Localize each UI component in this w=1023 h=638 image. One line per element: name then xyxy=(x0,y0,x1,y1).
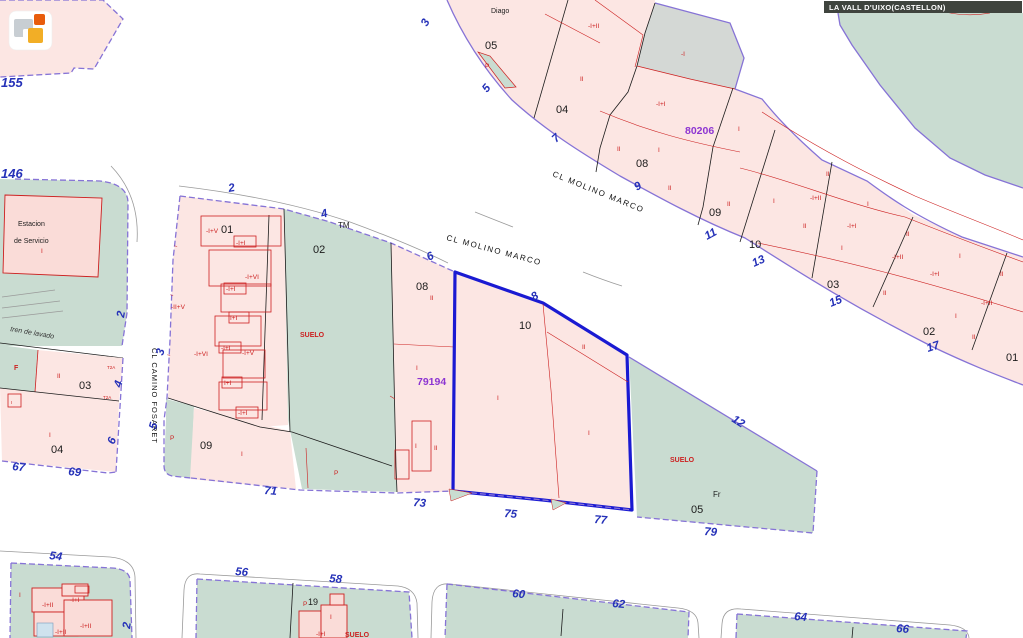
parcel-id-north: 80206 xyxy=(685,125,714,137)
parcel-number: 05 xyxy=(691,504,703,516)
parcel-number: 08 xyxy=(636,158,648,170)
parcel-id-south: 79194 xyxy=(417,376,446,388)
floor-label: P xyxy=(170,435,174,442)
floor-label: -I+I xyxy=(238,410,248,417)
parcel-f[interactable] xyxy=(0,345,38,392)
floor-label: II xyxy=(617,146,621,153)
parcel-60-62[interactable] xyxy=(445,584,689,638)
floor-label: I xyxy=(11,400,12,405)
street-number: 60 xyxy=(512,588,527,601)
floor-label: I xyxy=(415,443,417,450)
floor-label: P xyxy=(303,601,307,608)
floor-label: I xyxy=(867,201,869,208)
street-number: 4 xyxy=(319,207,330,221)
floor-label: -I+I xyxy=(236,240,246,247)
cadastral-map-canvas[interactable]: LA VALL D'UIXO(CASTELLON) xyxy=(0,0,1023,638)
estacion-label-line2: de Servicio xyxy=(14,238,49,245)
floor-label: I xyxy=(241,451,243,458)
parcel-number: 19 xyxy=(308,597,318,607)
parcel-number: 02 xyxy=(313,244,325,256)
floor-label: I xyxy=(49,432,51,439)
floor-label: -I+I xyxy=(316,631,326,638)
floor-label: -I xyxy=(681,51,685,58)
street-number: 58 xyxy=(329,573,343,586)
parcel-number: 10 xyxy=(749,239,761,251)
floor-label: I xyxy=(955,313,957,320)
street-number: 79 xyxy=(704,526,718,539)
floor-label: II xyxy=(972,334,976,341)
floor-label: -I+V xyxy=(242,350,255,357)
floor-label: II xyxy=(906,231,910,238)
street-number: 73 xyxy=(413,497,427,510)
floor-label: -I+II xyxy=(55,629,67,636)
parcel-s10-selected[interactable] xyxy=(453,272,632,510)
floor-label: -I+V xyxy=(206,228,219,235)
floor-label: I xyxy=(19,592,21,599)
floor-label: I+I xyxy=(230,315,238,322)
floor-label: -I+VI xyxy=(194,351,208,358)
fr-mark: Fr xyxy=(713,490,721,499)
parcel-number: 04 xyxy=(51,444,63,456)
estacion-label-line1: Estacion xyxy=(18,221,45,228)
floor-label: -I+VI xyxy=(245,274,259,281)
app-logo xyxy=(9,11,52,50)
floor-label: II xyxy=(883,290,887,297)
floor-label: I xyxy=(416,365,418,372)
street-number: 13 xyxy=(750,253,767,269)
street-number: 67 xyxy=(12,461,27,474)
street-number: 62 xyxy=(612,598,626,611)
floor-label: -I+II xyxy=(810,195,822,202)
floor-label: -I+I xyxy=(847,223,857,230)
street-number: 64 xyxy=(794,611,808,624)
floor-label: II xyxy=(580,76,584,83)
floor-label: II xyxy=(668,185,672,192)
street-number: 56 xyxy=(235,566,249,579)
floor-label: II xyxy=(57,373,61,380)
suelo-label: SUELO xyxy=(345,632,370,638)
floor-label: -I+II xyxy=(588,23,600,30)
floor-label: -I+I xyxy=(656,101,666,108)
parcel-number: 04 xyxy=(556,104,568,116)
floor-label: T2A xyxy=(103,395,111,400)
floor-label: -I+II xyxy=(892,254,904,261)
street-number: 54 xyxy=(49,550,64,564)
floor-label: II xyxy=(434,445,438,452)
street-number: 75 xyxy=(504,508,518,521)
floor-label: -I+I xyxy=(221,345,231,352)
parcel-s05-suelo[interactable] xyxy=(629,357,817,533)
parcel-number: 03 xyxy=(79,380,91,392)
parcel-number: 09 xyxy=(709,207,721,219)
street-number: 5 xyxy=(480,82,494,95)
suelo-label: SUELO xyxy=(300,332,325,339)
place-diago: Diago xyxy=(491,8,509,15)
pool xyxy=(37,623,53,637)
floor-label: -I+II xyxy=(981,300,993,307)
floor-label: -I+II xyxy=(42,602,54,609)
floor-label: I xyxy=(497,395,499,402)
street-number: 155 xyxy=(1,75,23,90)
floor-label: II xyxy=(826,171,830,178)
floor-label: I xyxy=(959,253,961,260)
floor-label: -I+I xyxy=(70,597,80,604)
street-number: 71 xyxy=(264,485,278,498)
parcel-number: 01 xyxy=(221,224,233,236)
floor-label: II xyxy=(430,295,434,302)
street-number: 11 xyxy=(703,226,719,242)
floor-label: I xyxy=(841,245,843,252)
street-number: 3 xyxy=(419,17,433,29)
floor-label: II xyxy=(1000,271,1004,278)
parcel-number: 10 xyxy=(519,320,531,332)
cadastral-viewer: LA VALL D'UIXO(CASTELLON) xyxy=(0,0,1023,638)
floor-label: -I+II xyxy=(80,623,92,630)
parcel-s02-suelo[interactable] xyxy=(284,209,397,492)
floor-label: I xyxy=(588,430,590,437)
floor-label: II xyxy=(582,344,586,351)
floor-label: T2A xyxy=(107,365,115,370)
floor-label: I xyxy=(738,126,740,133)
floor-label: I xyxy=(658,147,660,154)
floor-label: I xyxy=(773,198,775,205)
building-estacion xyxy=(3,195,102,277)
street-name-molino-marco-a: CL MOLINO MARCO xyxy=(445,233,542,267)
floor-label: I xyxy=(330,614,332,621)
floor-label: -I+I xyxy=(930,271,940,278)
parcel-number: 08 xyxy=(416,281,428,293)
parcel-number: 01 xyxy=(1006,352,1018,364)
street-number: 146 xyxy=(1,166,23,181)
parcel-green-strip[interactable] xyxy=(164,399,194,478)
street-number: 77 xyxy=(594,514,608,527)
logo-yellow-square-icon xyxy=(28,28,43,43)
municipality-label: LA VALL D'UIXO(CASTELLON) xyxy=(829,3,946,12)
logo-orange-square-icon xyxy=(34,14,45,25)
parcel-number: 09 xyxy=(200,440,212,452)
parcel-number: 02 xyxy=(923,326,935,338)
floor-label: II xyxy=(727,201,731,208)
parcel-number: 03 xyxy=(827,279,839,291)
floor-label: F xyxy=(14,365,19,372)
parcel-number: 05 xyxy=(485,40,497,52)
floor-label: II xyxy=(803,223,807,230)
tm-boundary-mark: TM xyxy=(338,221,350,230)
parcel-w04[interactable] xyxy=(0,388,119,472)
floor-label: I+I xyxy=(224,380,232,387)
street-number: 69 xyxy=(68,466,83,479)
floor-label: I xyxy=(41,248,43,255)
floor-label: -II+V xyxy=(171,304,186,311)
floor-label: -I+I xyxy=(226,286,236,293)
street-number: 66 xyxy=(896,623,910,636)
parcel-green-corner[interactable] xyxy=(838,13,1023,188)
floor-label: P xyxy=(485,63,489,70)
floor-label: P xyxy=(334,470,338,477)
suelo-label: SUELO xyxy=(670,457,695,464)
